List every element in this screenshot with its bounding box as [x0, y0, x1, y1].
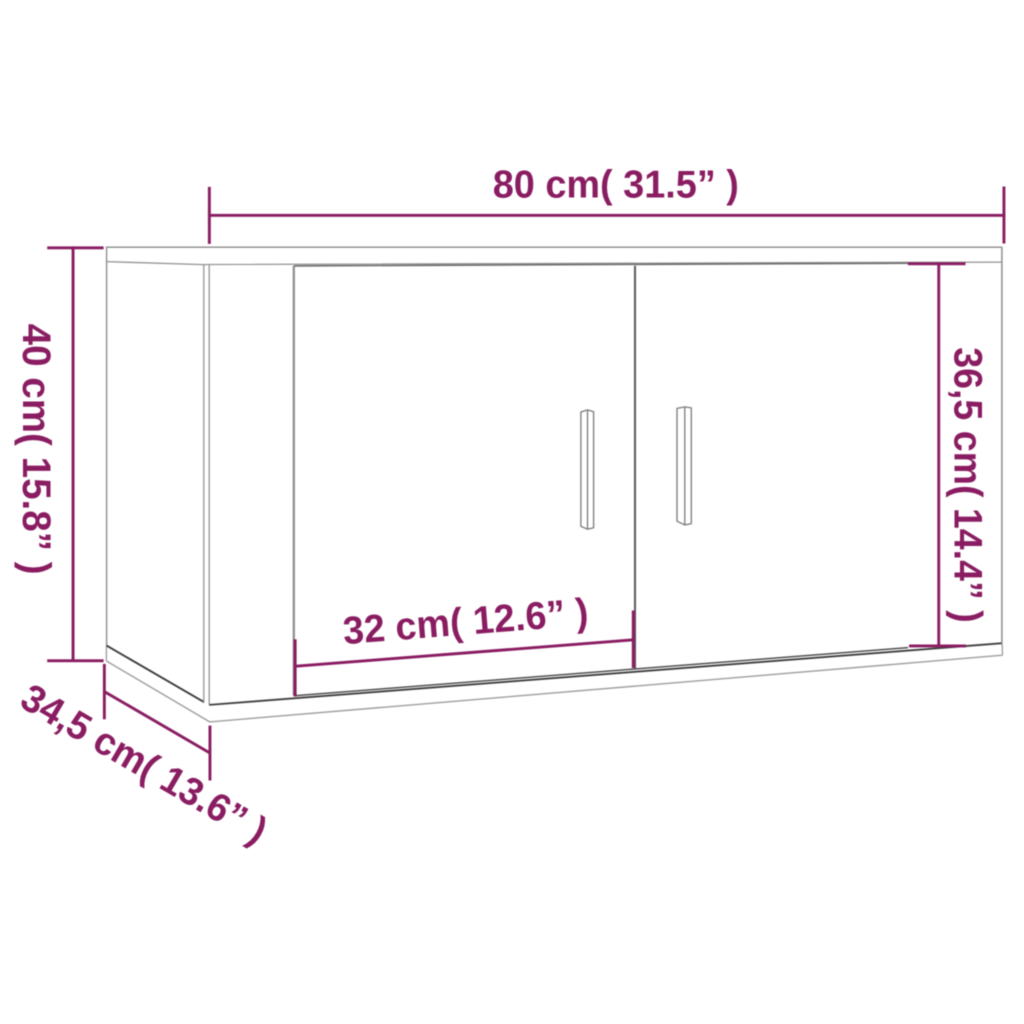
svg-text:80 cm( 31.5” ): 80 cm( 31.5” )	[493, 163, 739, 206]
svg-text:36,5 cm( 14.4” ): 36,5 cm( 14.4” )	[945, 347, 989, 623]
svg-text:32 cm( 12.6” ): 32 cm( 12.6” )	[341, 591, 590, 653]
svg-text:40 cm( 15.8” ): 40 cm( 15.8” )	[14, 324, 58, 575]
